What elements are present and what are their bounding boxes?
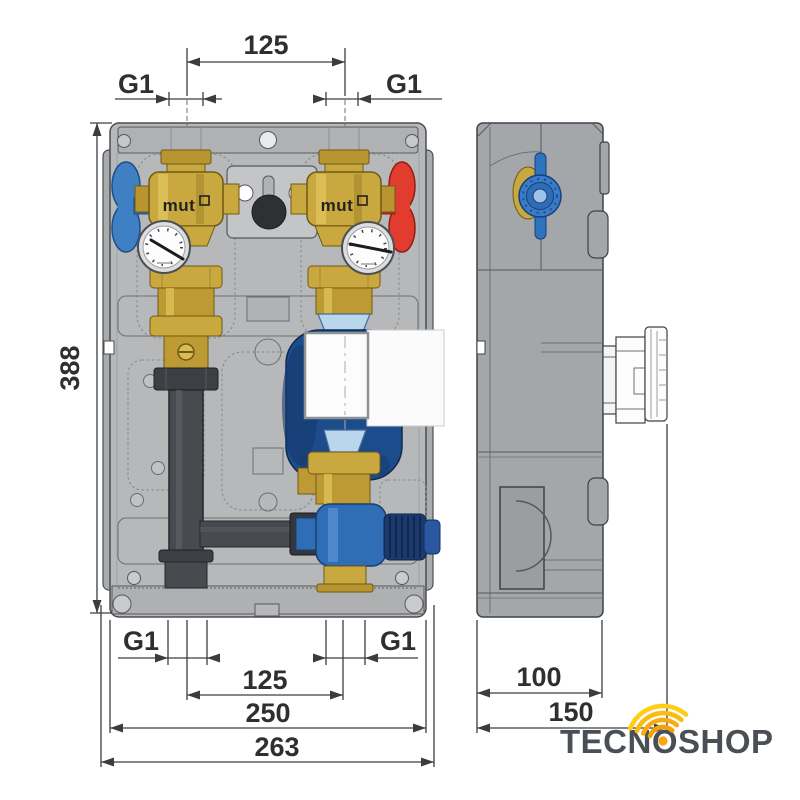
side-clip-lower xyxy=(588,478,608,525)
dim-label-250: 250 xyxy=(245,698,290,728)
dim-label-388: 388 xyxy=(55,345,85,390)
dim-label-100: 100 xyxy=(516,662,561,692)
dim-label-g1-top-left: G1 xyxy=(118,69,154,99)
pump-motor-head-side xyxy=(603,327,667,423)
dim-port-bottom-right: G1 xyxy=(313,620,418,665)
dim-label-263: 263 xyxy=(254,732,299,762)
side-view xyxy=(477,123,667,617)
dim-port-bottom-left: G1 xyxy=(118,620,220,665)
valve-brand-right: mut xyxy=(321,196,354,215)
side-clip-upper xyxy=(588,211,608,258)
pump-label-blank xyxy=(305,333,368,418)
valve-brand-left: mut xyxy=(163,196,196,215)
thermometer-right xyxy=(342,222,394,274)
dim-label-g1-bottom-right: G1 xyxy=(380,626,416,656)
dim-label-bottom-125: 125 xyxy=(242,665,287,695)
dim-label-g1-top-right: G1 xyxy=(386,69,422,99)
dim-top-port-spacing: 125 xyxy=(187,30,345,126)
drawing-svg: mut xyxy=(0,0,800,800)
side-clip-top xyxy=(600,142,609,194)
pump-cover-blank xyxy=(367,330,444,426)
front-view: mut xyxy=(103,123,444,617)
side-bottom-bracket xyxy=(500,487,551,589)
dim-port-top-right: G1 xyxy=(313,69,442,106)
dim-port-top-left: G1 xyxy=(115,69,222,106)
dim-label-g1-bottom-left: G1 xyxy=(123,626,159,656)
product-technical-drawing: mut xyxy=(0,0,800,800)
thermometer-left xyxy=(138,221,190,273)
dim-label-top-125: 125 xyxy=(243,30,288,60)
bracket-knob xyxy=(252,195,286,229)
